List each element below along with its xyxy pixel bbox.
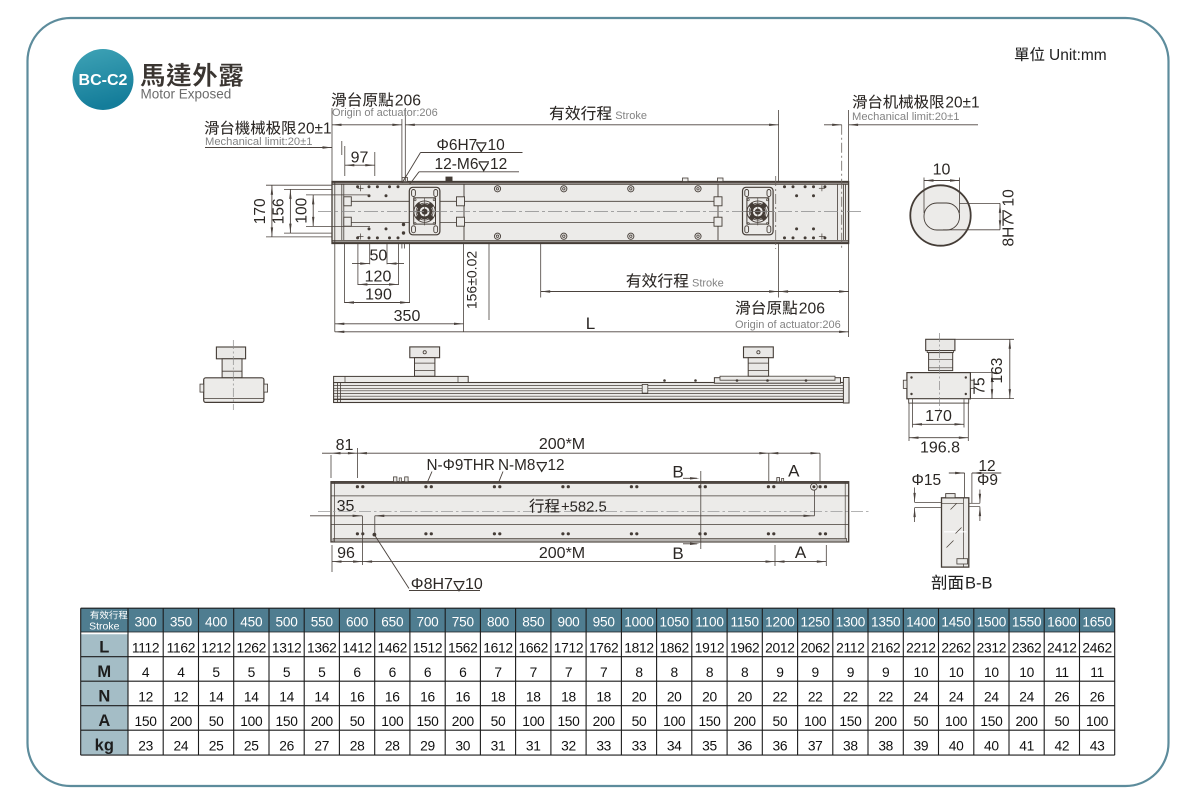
svg-text:150: 150 <box>135 714 158 729</box>
svg-text:100: 100 <box>381 714 404 729</box>
svg-text:100: 100 <box>945 714 968 729</box>
svg-text:1000: 1000 <box>624 614 654 629</box>
svg-text:33: 33 <box>596 739 611 754</box>
svg-text:20±1: 20±1 <box>945 95 979 112</box>
svg-text:1162: 1162 <box>167 641 195 656</box>
svg-text:30: 30 <box>455 739 470 754</box>
svg-text:20: 20 <box>737 690 752 705</box>
svg-text:A: A <box>98 712 110 730</box>
svg-text:B: B <box>672 463 683 482</box>
svg-text:12: 12 <box>548 457 565 474</box>
svg-text:22: 22 <box>878 690 893 705</box>
svg-text:2362: 2362 <box>1012 641 1042 656</box>
svg-text:14: 14 <box>244 690 259 705</box>
svg-text:kg: kg <box>95 737 114 755</box>
svg-text:2212: 2212 <box>906 641 936 656</box>
svg-text:Unit:mm: Unit:mm <box>1049 47 1107 64</box>
svg-text:1462: 1462 <box>378 641 408 656</box>
svg-text:1400: 1400 <box>906 614 936 629</box>
svg-text:50: 50 <box>491 714 506 729</box>
svg-text:12: 12 <box>174 690 189 705</box>
svg-text:200: 200 <box>734 714 757 729</box>
svg-text:1550: 1550 <box>1012 614 1042 629</box>
svg-text:26: 26 <box>1055 690 1070 705</box>
svg-text:18: 18 <box>561 690 576 705</box>
svg-text:8: 8 <box>635 665 643 680</box>
svg-text:1512: 1512 <box>413 641 443 656</box>
svg-text:1112: 1112 <box>132 641 159 656</box>
svg-text:5: 5 <box>212 665 220 680</box>
svg-text:700: 700 <box>416 614 439 629</box>
svg-text:20: 20 <box>702 690 717 705</box>
svg-text:650: 650 <box>381 614 404 629</box>
svg-text:12: 12 <box>490 156 507 173</box>
svg-text:500: 500 <box>276 614 299 629</box>
svg-text:Origin of actuator:206: Origin of actuator:206 <box>735 319 841 331</box>
svg-text:5: 5 <box>283 665 291 680</box>
svg-text:35: 35 <box>337 498 355 515</box>
svg-text:50: 50 <box>209 714 224 729</box>
svg-text:2162: 2162 <box>871 641 901 656</box>
svg-text:16: 16 <box>420 690 435 705</box>
svg-text:42: 42 <box>1055 739 1070 754</box>
svg-text:10: 10 <box>1019 665 1034 680</box>
svg-text:24: 24 <box>949 690 964 705</box>
svg-text:81: 81 <box>336 437 354 454</box>
svg-text:5: 5 <box>318 665 326 680</box>
svg-text:96: 96 <box>337 545 355 562</box>
svg-text:6: 6 <box>424 665 432 680</box>
svg-text:24: 24 <box>914 690 929 705</box>
svg-text:9: 9 <box>882 665 890 680</box>
svg-text:850: 850 <box>522 614 545 629</box>
svg-text:150: 150 <box>980 714 1003 729</box>
svg-text:31: 31 <box>491 739 506 754</box>
svg-text:2312: 2312 <box>977 641 1007 656</box>
svg-text:8: 8 <box>741 665 749 680</box>
svg-text:11: 11 <box>1090 665 1104 680</box>
svg-text:28: 28 <box>385 739 400 754</box>
svg-text:+582.5: +582.5 <box>561 500 607 516</box>
svg-text:50: 50 <box>632 714 647 729</box>
svg-text:900: 900 <box>557 614 580 629</box>
svg-text:1450: 1450 <box>941 614 971 629</box>
svg-text:M: M <box>97 663 111 681</box>
svg-text:200*M: 200*M <box>539 545 585 562</box>
svg-text:10: 10 <box>1001 189 1018 207</box>
svg-text:N: N <box>98 688 110 706</box>
svg-text:2262: 2262 <box>941 641 971 656</box>
svg-text:L: L <box>99 639 109 657</box>
svg-text:750: 750 <box>452 614 475 629</box>
svg-text:1650: 1650 <box>1082 614 1112 629</box>
svg-text:11: 11 <box>1055 665 1069 680</box>
svg-text:300: 300 <box>135 614 158 629</box>
svg-text:Φ9: Φ9 <box>977 472 998 489</box>
svg-text:163: 163 <box>989 358 1006 384</box>
svg-text:156: 156 <box>271 198 288 224</box>
svg-text:1362: 1362 <box>307 641 337 656</box>
svg-text:Φ6H7: Φ6H7 <box>437 137 478 154</box>
svg-text:10: 10 <box>933 162 951 179</box>
svg-text:200: 200 <box>452 714 475 729</box>
svg-text:25: 25 <box>244 739 259 754</box>
svg-text:9: 9 <box>776 665 784 680</box>
svg-text:Mechanical limit:20±1: Mechanical limit:20±1 <box>852 111 960 123</box>
svg-text:33: 33 <box>632 739 647 754</box>
svg-text:Mechanical limit:20±1: Mechanical limit:20±1 <box>205 136 313 148</box>
svg-text:2412: 2412 <box>1047 641 1077 656</box>
svg-text:170: 170 <box>252 198 269 224</box>
svg-text:190: 190 <box>365 287 392 304</box>
svg-text:100: 100 <box>1086 714 1109 729</box>
svg-text:Origin of actuator:206: Origin of actuator:206 <box>332 107 438 119</box>
svg-text:31: 31 <box>526 739 541 754</box>
svg-text:37: 37 <box>808 739 823 754</box>
svg-text:9: 9 <box>812 665 820 680</box>
svg-text:206: 206 <box>799 301 825 318</box>
svg-text:1262: 1262 <box>237 641 267 656</box>
svg-text:25: 25 <box>209 739 224 754</box>
svg-text:23: 23 <box>138 739 153 754</box>
svg-text:24: 24 <box>174 739 189 754</box>
svg-text:10: 10 <box>984 665 999 680</box>
svg-text:B-B: B-B <box>965 575 993 593</box>
svg-text:10: 10 <box>949 665 964 680</box>
svg-text:100: 100 <box>522 714 545 729</box>
svg-text:50: 50 <box>350 714 365 729</box>
svg-text:Motor Exposed: Motor Exposed <box>141 87 232 102</box>
svg-text:4: 4 <box>142 665 150 680</box>
svg-text:50: 50 <box>914 714 929 729</box>
svg-text:7: 7 <box>565 665 572 680</box>
svg-text:6: 6 <box>389 665 397 680</box>
svg-text:22: 22 <box>808 690 823 705</box>
svg-text:38: 38 <box>878 739 893 754</box>
svg-text:200: 200 <box>311 714 334 729</box>
svg-text:Φ15: Φ15 <box>912 472 942 489</box>
svg-text:2012: 2012 <box>765 641 795 656</box>
svg-text:14: 14 <box>209 690 224 705</box>
svg-text:350: 350 <box>170 614 193 629</box>
svg-text:1962: 1962 <box>730 641 760 656</box>
svg-text:10: 10 <box>488 137 506 154</box>
svg-text:200: 200 <box>1016 714 1039 729</box>
svg-text:2062: 2062 <box>800 641 830 656</box>
svg-text:22: 22 <box>773 690 788 705</box>
svg-text:950: 950 <box>593 614 616 629</box>
svg-text:1050: 1050 <box>659 614 689 629</box>
svg-text:29: 29 <box>420 739 435 754</box>
svg-text:7: 7 <box>494 665 501 680</box>
svg-text:550: 550 <box>311 614 334 629</box>
svg-text:Stroke: Stroke <box>89 621 120 633</box>
svg-text:16: 16 <box>350 690 365 705</box>
svg-text:120: 120 <box>365 269 392 286</box>
svg-text:6: 6 <box>353 665 361 680</box>
svg-text:50: 50 <box>1055 714 1070 729</box>
svg-text:16: 16 <box>455 690 470 705</box>
svg-text:20: 20 <box>667 690 682 705</box>
svg-text:200*M: 200*M <box>539 436 585 453</box>
svg-text:75: 75 <box>972 377 989 394</box>
svg-text:1200: 1200 <box>765 614 795 629</box>
svg-text:Stroke: Stroke <box>692 278 724 290</box>
svg-text:200: 200 <box>170 714 193 729</box>
svg-text:4: 4 <box>177 665 185 680</box>
svg-text:350: 350 <box>394 308 421 325</box>
svg-text:450: 450 <box>240 614 263 629</box>
svg-text:A: A <box>788 462 800 481</box>
svg-text:150: 150 <box>276 714 299 729</box>
svg-text:B: B <box>672 544 683 563</box>
svg-text:200: 200 <box>593 714 616 729</box>
svg-text:16: 16 <box>385 690 400 705</box>
svg-text:18: 18 <box>491 690 506 705</box>
svg-text:1350: 1350 <box>871 614 901 629</box>
svg-text:1912: 1912 <box>695 641 725 656</box>
svg-text:600: 600 <box>346 614 369 629</box>
svg-text:20: 20 <box>632 690 647 705</box>
svg-text:1762: 1762 <box>589 641 619 656</box>
svg-text:150: 150 <box>839 714 862 729</box>
svg-text:1300: 1300 <box>836 614 866 629</box>
svg-text:50: 50 <box>370 248 388 265</box>
svg-text:1250: 1250 <box>800 614 830 629</box>
svg-text:1662: 1662 <box>519 641 549 656</box>
svg-text:1562: 1562 <box>448 641 478 656</box>
svg-text:12: 12 <box>138 690 153 705</box>
svg-text:1812: 1812 <box>624 641 654 656</box>
svg-text:5: 5 <box>248 665 256 680</box>
svg-text:10: 10 <box>914 665 929 680</box>
svg-text:2112: 2112 <box>836 641 864 656</box>
svg-text:1312: 1312 <box>272 641 302 656</box>
svg-text:1712: 1712 <box>554 641 584 656</box>
svg-text:N-M8: N-M8 <box>498 457 535 474</box>
svg-text:1600: 1600 <box>1047 614 1077 629</box>
svg-text:100: 100 <box>663 714 686 729</box>
svg-text:2462: 2462 <box>1082 641 1112 656</box>
svg-text:1612: 1612 <box>483 641 513 656</box>
svg-text:N-Φ9THR: N-Φ9THR <box>427 457 495 474</box>
svg-text:A: A <box>795 543 807 562</box>
svg-text:34: 34 <box>667 739 682 754</box>
svg-text:BC-C2: BC-C2 <box>79 72 128 89</box>
svg-text:8: 8 <box>706 665 714 680</box>
svg-text:27: 27 <box>314 739 329 754</box>
svg-text:32: 32 <box>561 739 576 754</box>
svg-text:196.8: 196.8 <box>920 440 960 457</box>
svg-text:43: 43 <box>1090 739 1105 754</box>
svg-text:8: 8 <box>671 665 679 680</box>
svg-text:800: 800 <box>487 614 510 629</box>
svg-text:24: 24 <box>984 690 999 705</box>
svg-text:1150: 1150 <box>730 614 759 629</box>
svg-text:18: 18 <box>526 690 541 705</box>
svg-text:24: 24 <box>1019 690 1034 705</box>
svg-text:150: 150 <box>698 714 721 729</box>
svg-text:41: 41 <box>1019 739 1034 754</box>
svg-text:18: 18 <box>596 690 611 705</box>
svg-text:26: 26 <box>279 739 294 754</box>
svg-text:1100: 1100 <box>695 614 724 629</box>
svg-text:7: 7 <box>600 665 607 680</box>
svg-text:200: 200 <box>875 714 898 729</box>
svg-text:400: 400 <box>205 614 228 629</box>
svg-text:L: L <box>586 314 595 333</box>
svg-text:20±1: 20±1 <box>297 121 331 138</box>
svg-text:97: 97 <box>351 150 369 167</box>
svg-text:1862: 1862 <box>659 641 689 656</box>
svg-text:26: 26 <box>1090 690 1105 705</box>
svg-text:100: 100 <box>294 197 311 223</box>
svg-text:6: 6 <box>459 665 467 680</box>
svg-text:150: 150 <box>557 714 580 729</box>
svg-text:100: 100 <box>804 714 827 729</box>
svg-text:170: 170 <box>925 408 952 425</box>
svg-text:50: 50 <box>773 714 788 729</box>
svg-text:40: 40 <box>984 739 999 754</box>
svg-text:150: 150 <box>416 714 439 729</box>
svg-text:28: 28 <box>350 739 365 754</box>
svg-text:1212: 1212 <box>201 641 231 656</box>
svg-text:1412: 1412 <box>342 641 372 656</box>
svg-text:14: 14 <box>314 690 329 705</box>
svg-text:36: 36 <box>773 739 788 754</box>
svg-text:38: 38 <box>843 739 858 754</box>
svg-text:39: 39 <box>914 739 929 754</box>
svg-text:35: 35 <box>702 739 717 754</box>
svg-text:22: 22 <box>843 690 858 705</box>
svg-text:100: 100 <box>240 714 263 729</box>
svg-text:40: 40 <box>949 739 964 754</box>
svg-text:9: 9 <box>847 665 855 680</box>
svg-text:7: 7 <box>530 665 537 680</box>
svg-text:8H7: 8H7 <box>1001 218 1018 246</box>
svg-text:156±0.02: 156±0.02 <box>464 251 480 310</box>
svg-text:Stroke: Stroke <box>615 110 647 122</box>
svg-text:12-M6: 12-M6 <box>435 156 479 173</box>
svg-text:1500: 1500 <box>977 614 1007 629</box>
svg-text:14: 14 <box>279 690 294 705</box>
svg-text:36: 36 <box>737 739 752 754</box>
